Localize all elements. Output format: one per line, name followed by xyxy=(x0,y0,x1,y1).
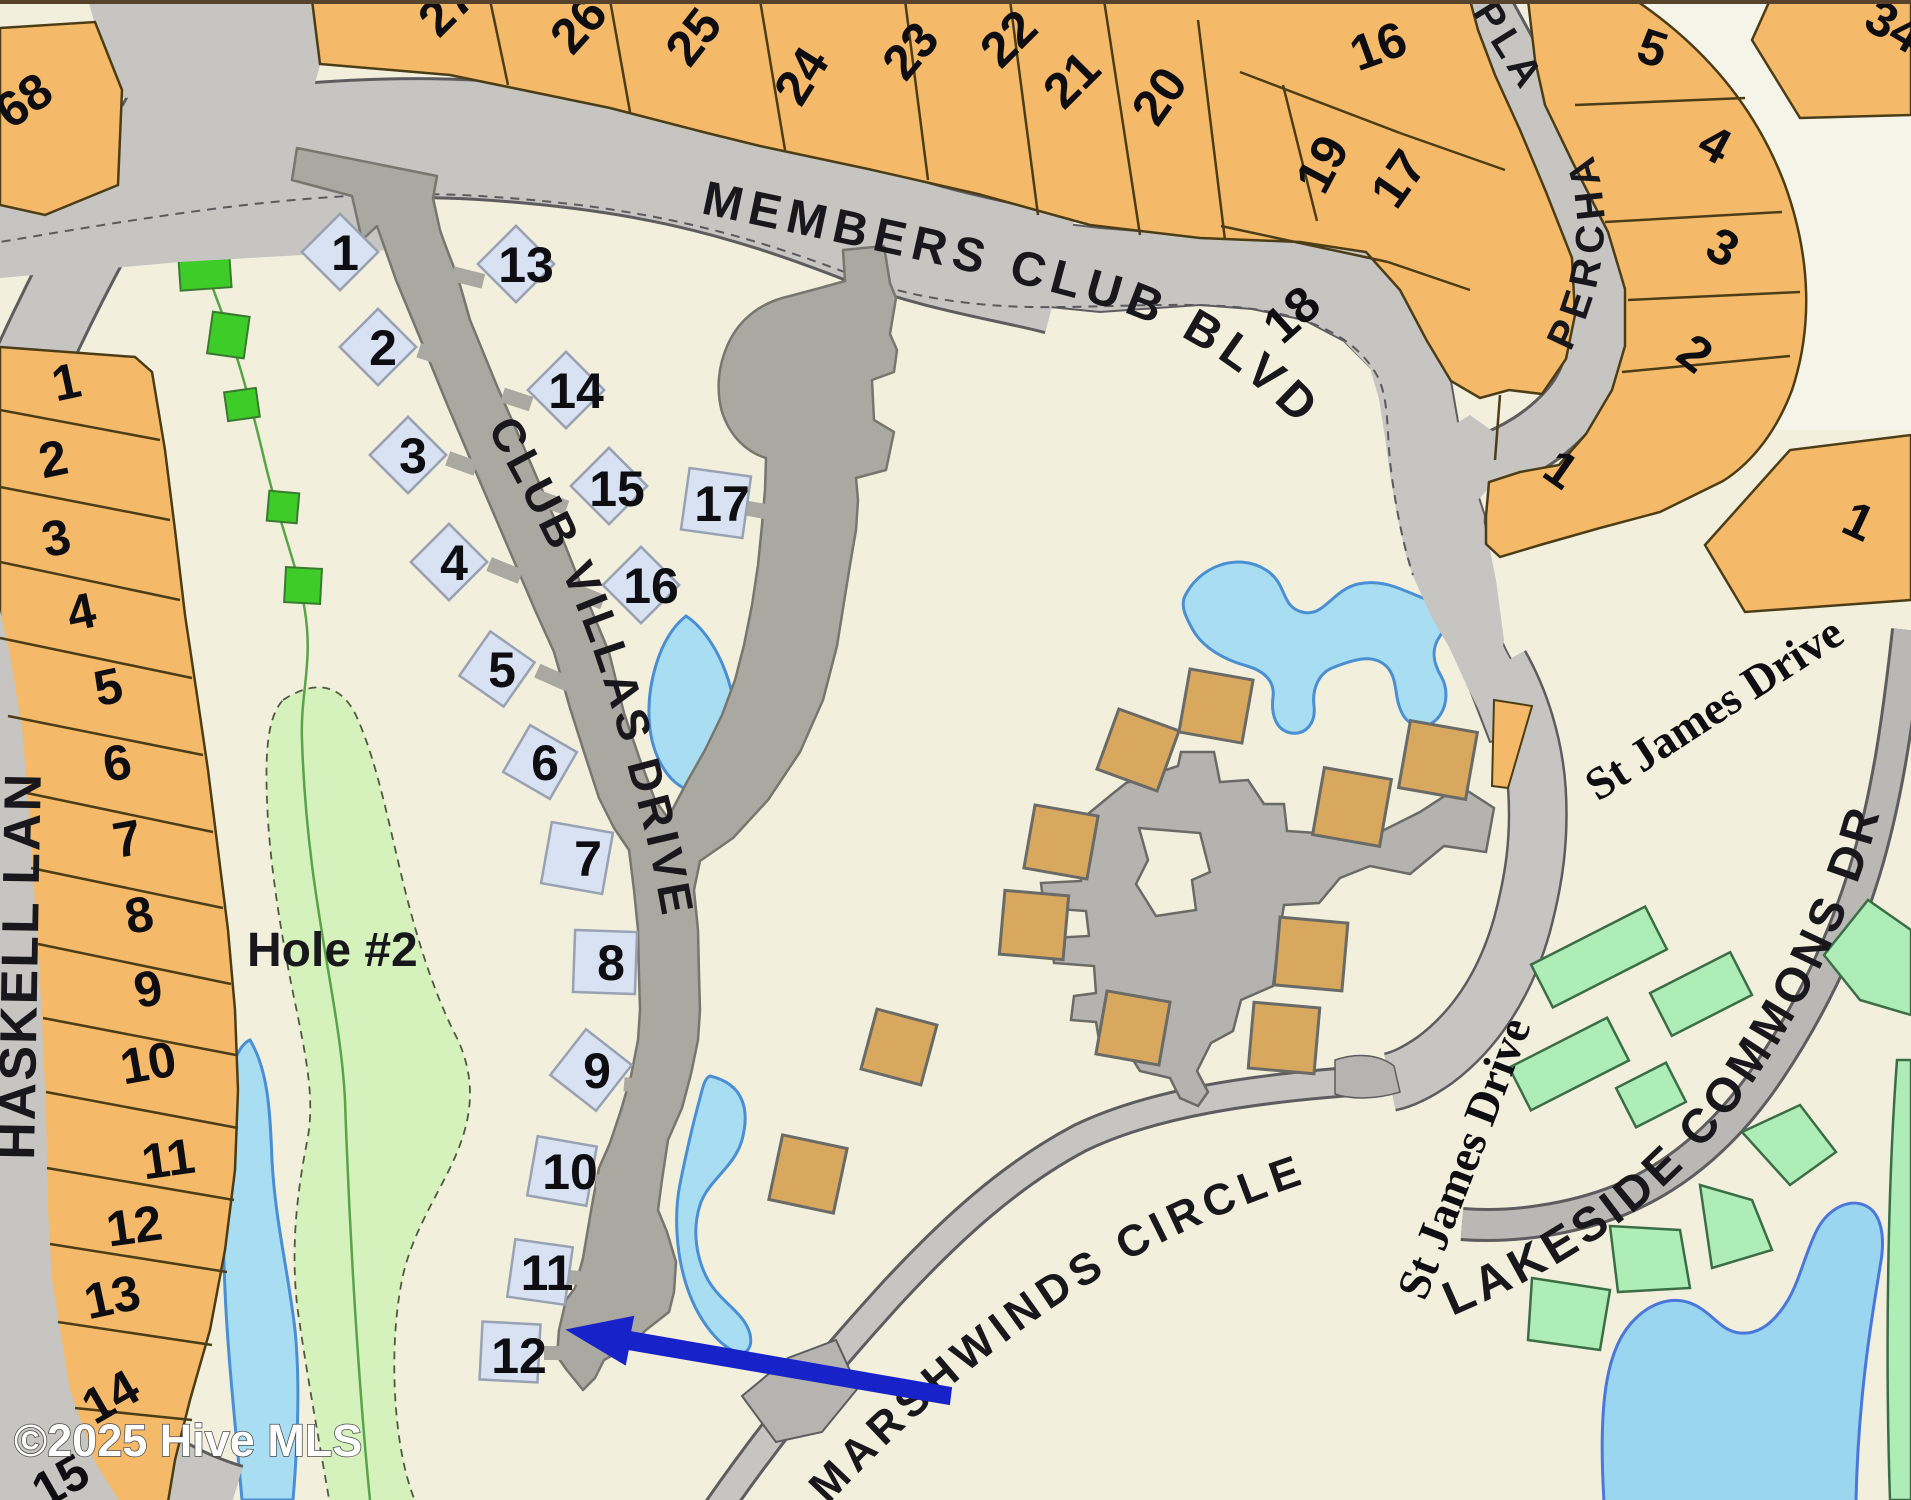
svg-text:10: 10 xyxy=(542,1144,598,1200)
svg-text:5: 5 xyxy=(488,642,516,698)
svg-text:7: 7 xyxy=(574,831,602,887)
svg-text:12: 12 xyxy=(491,1328,547,1384)
svg-text:HASKELL LAN: HASKELL LAN xyxy=(0,771,53,1160)
svg-text:9: 9 xyxy=(583,1043,611,1099)
svg-text:14: 14 xyxy=(548,363,604,419)
svg-text:13: 13 xyxy=(79,1264,145,1330)
svg-text:13: 13 xyxy=(498,237,554,293)
svg-text:1: 1 xyxy=(331,225,359,281)
svg-text:8: 8 xyxy=(597,935,625,991)
svg-text:10: 10 xyxy=(116,1031,181,1096)
svg-text:4: 4 xyxy=(440,535,468,591)
svg-text:6: 6 xyxy=(531,735,559,791)
svg-text:11: 11 xyxy=(138,1128,198,1191)
svg-text:12: 12 xyxy=(103,1194,166,1257)
svg-text:©2025 Hive MLS: ©2025 Hive MLS xyxy=(14,1415,362,1466)
svg-text:17: 17 xyxy=(694,476,750,532)
svg-text:Hole #2: Hole #2 xyxy=(247,924,418,977)
svg-text:15: 15 xyxy=(589,461,645,517)
svg-text:2: 2 xyxy=(369,320,397,376)
svg-text:16: 16 xyxy=(623,558,679,614)
svg-text:11: 11 xyxy=(521,1245,574,1301)
svg-text:3: 3 xyxy=(399,428,427,484)
